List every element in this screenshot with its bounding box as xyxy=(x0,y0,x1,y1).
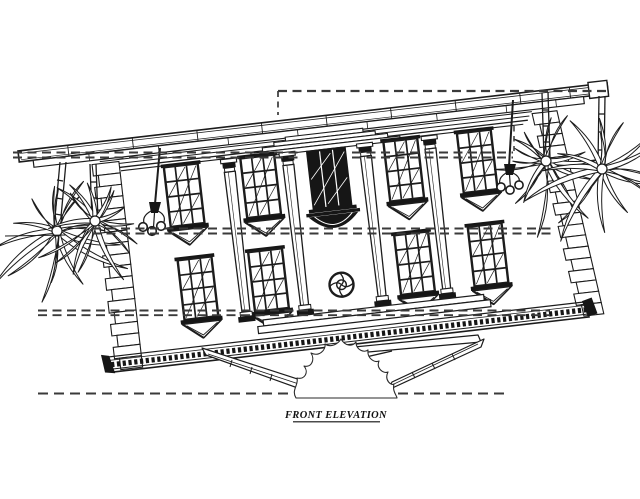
upper-window-3 xyxy=(379,135,430,222)
palm-crown-bud xyxy=(90,216,100,226)
elevation-label: FRONT ELEVATION xyxy=(284,410,387,421)
porch-steps xyxy=(257,294,491,334)
upper-window-2 xyxy=(236,151,287,238)
lower-window-1 xyxy=(173,253,224,340)
drawing-sheet: FRONT ELEVATION xyxy=(0,0,640,499)
elevation-drawing-svg: FRONT ELEVATION xyxy=(0,0,640,499)
rosette-medallion xyxy=(328,271,355,298)
palm-crown-bud xyxy=(541,156,551,166)
palm-crown-bud xyxy=(597,164,607,174)
